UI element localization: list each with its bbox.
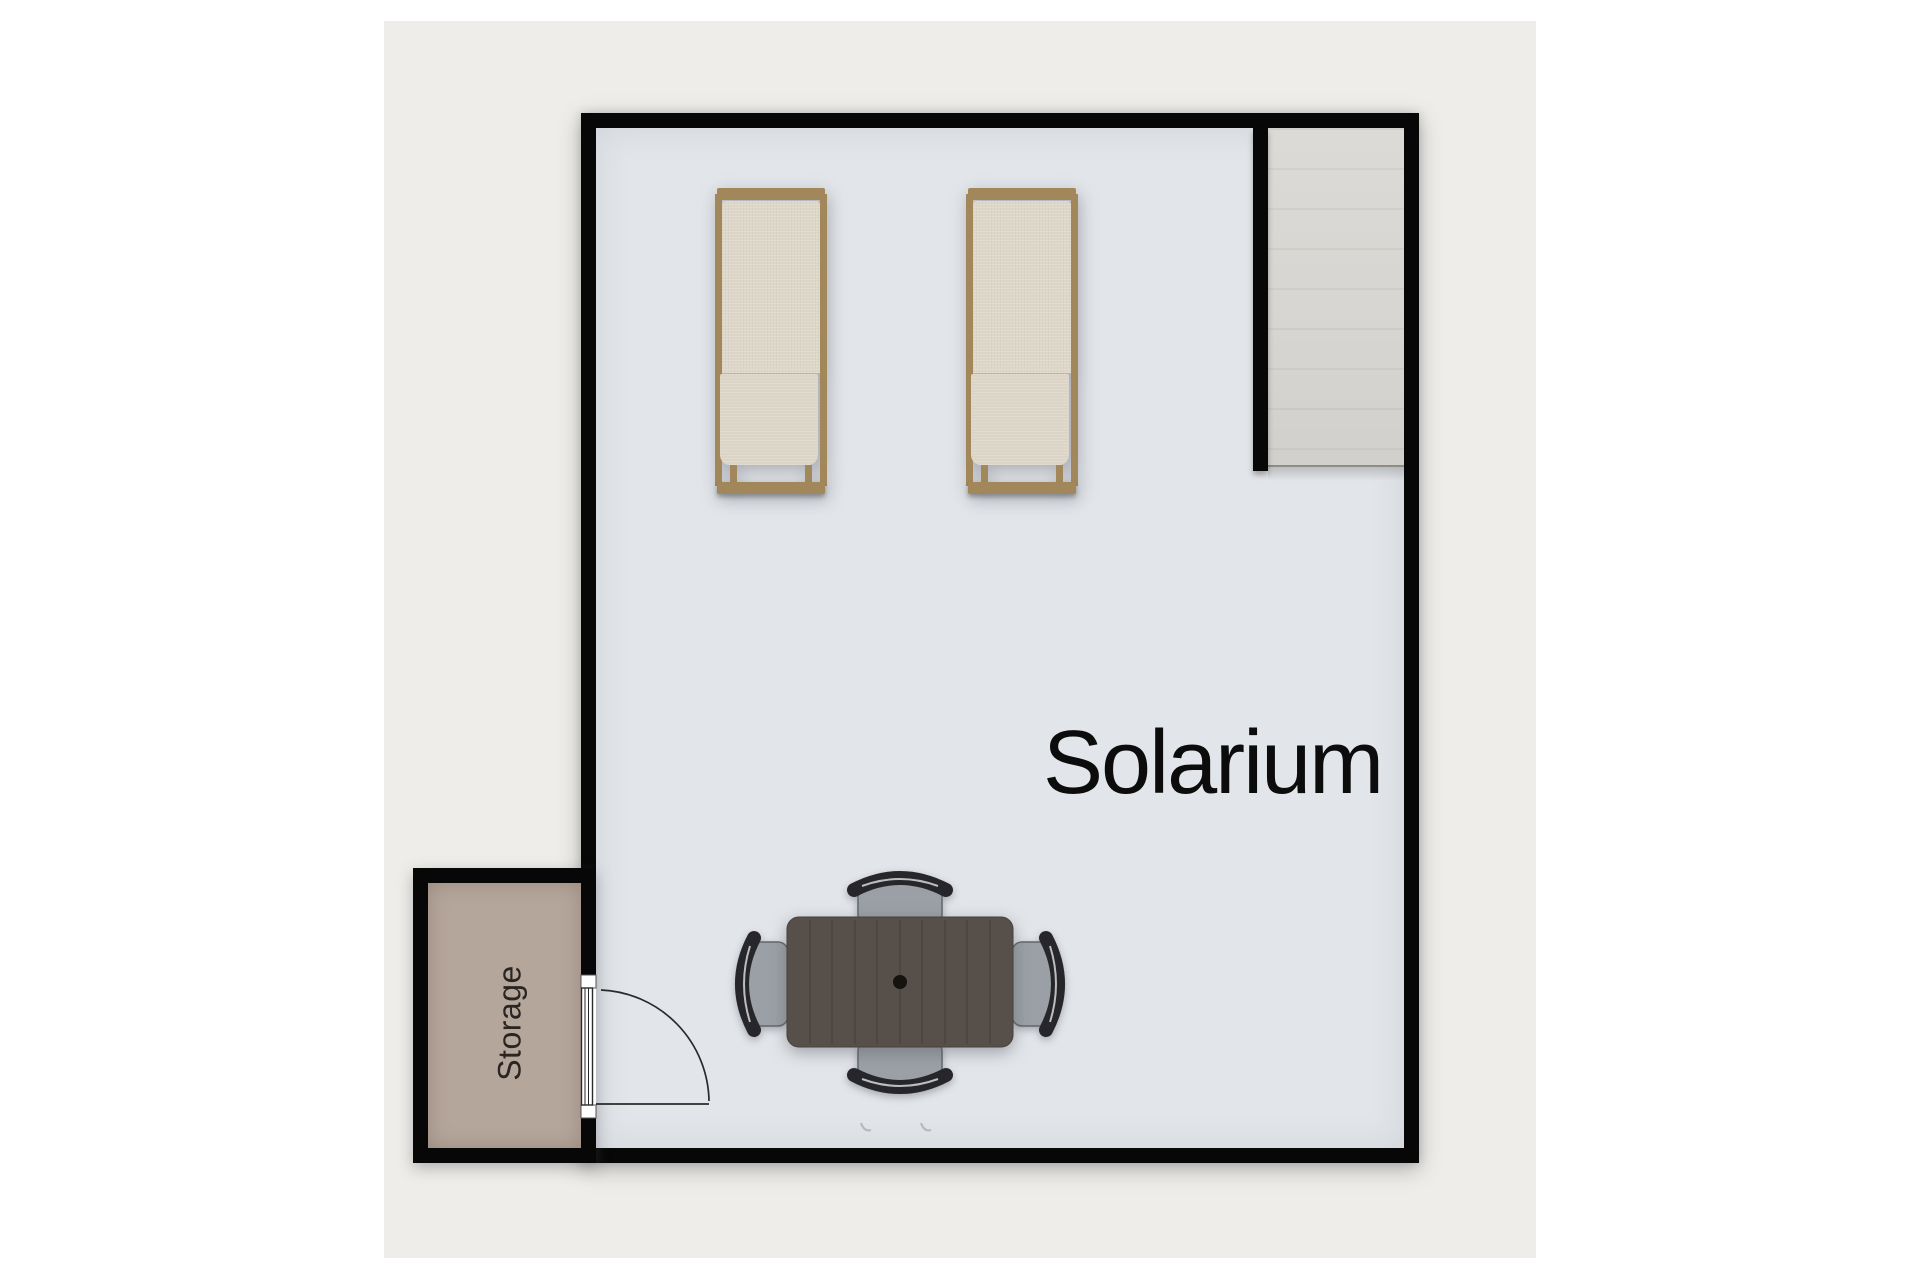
room-label-solarium: Solarium bbox=[1043, 716, 1382, 810]
dining-chair-left bbox=[742, 938, 788, 1030]
table-umbrella-hole bbox=[893, 975, 907, 989]
door-leaf-closed bbox=[582, 988, 593, 1105]
swing-door bbox=[581, 975, 709, 1118]
door-jamb-top bbox=[581, 975, 596, 988]
dining-chair-right bbox=[1012, 938, 1058, 1030]
floor-marks bbox=[861, 1123, 931, 1130]
door-jamb-bottom bbox=[581, 1105, 596, 1118]
room-label-storage: Storage bbox=[492, 965, 529, 1081]
dining-table bbox=[787, 917, 1013, 1047]
floorplan-page: Solarium Storage bbox=[0, 0, 1920, 1280]
door-swing-arc bbox=[601, 990, 709, 1101]
plan-symbols-layer bbox=[0, 0, 1920, 1280]
dining-chair-bottom bbox=[854, 1041, 946, 1087]
